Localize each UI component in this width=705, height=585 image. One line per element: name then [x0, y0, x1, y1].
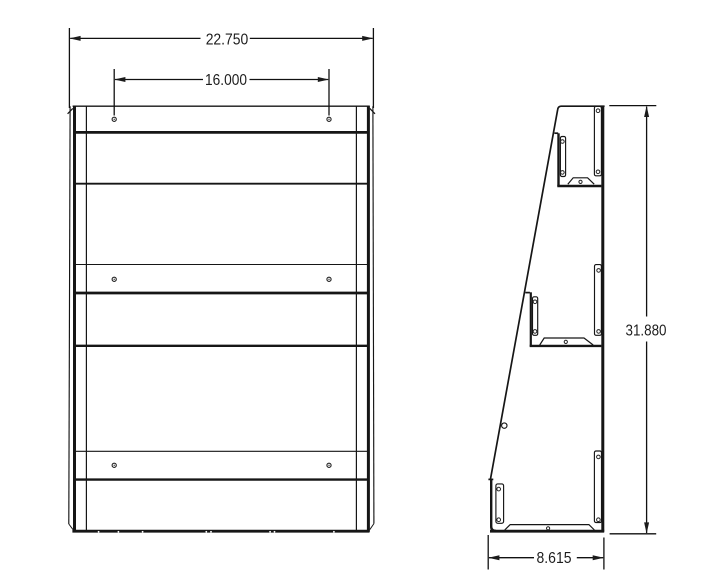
svg-text:8.615: 8.615	[537, 550, 572, 567]
svg-text:22.750: 22.750	[206, 32, 249, 49]
svg-text:16.000: 16.000	[205, 72, 247, 89]
svg-text:31.880: 31.880	[626, 322, 667, 339]
